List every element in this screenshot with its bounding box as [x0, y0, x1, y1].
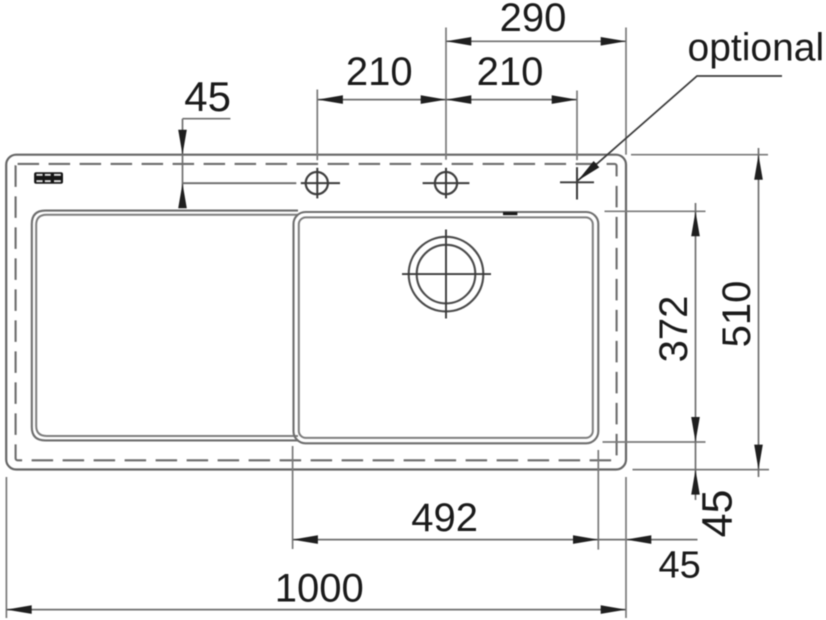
svg-text:optional: optional [688, 27, 825, 70]
svg-text:290: 290 [500, 0, 567, 40]
svg-text:1000: 1000 [275, 567, 364, 611]
svg-text:372: 372 [652, 296, 696, 363]
svg-text:210: 210 [477, 50, 544, 94]
svg-text:45: 45 [658, 544, 700, 586]
svg-text:510: 510 [715, 281, 759, 348]
svg-text:45: 45 [694, 490, 742, 538]
svg-text:45: 45 [184, 73, 231, 120]
svg-text:210: 210 [346, 50, 413, 94]
svg-text:492: 492 [411, 496, 478, 540]
